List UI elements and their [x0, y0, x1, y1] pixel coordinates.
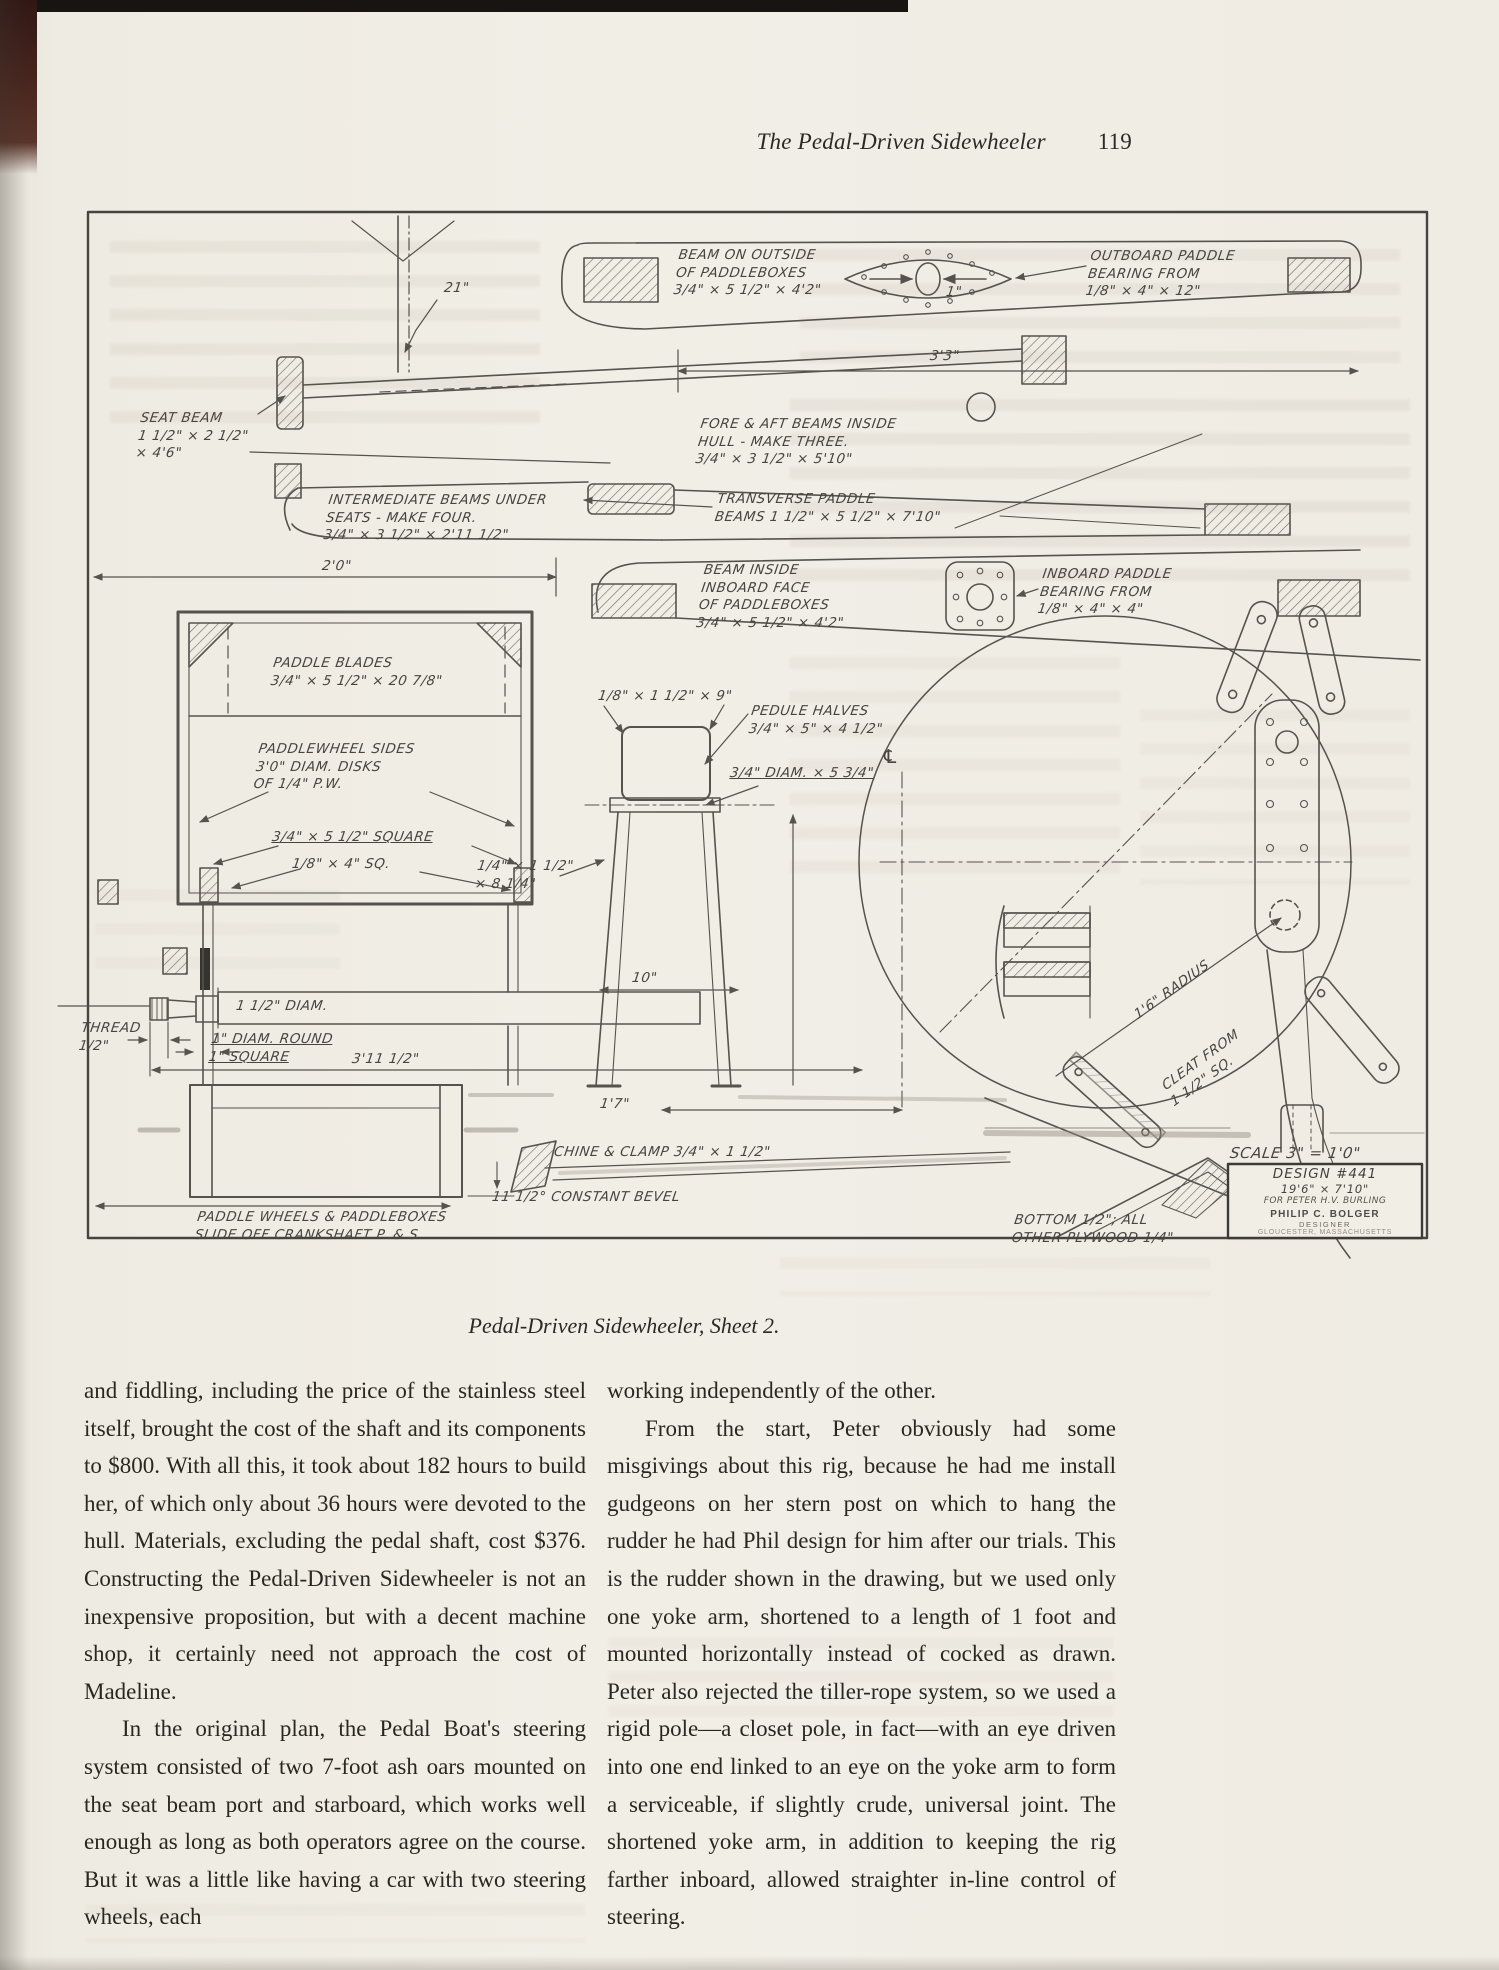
label-constant-bevel: 11 1/2° CONSTANT BEVEL [491, 1189, 682, 1207]
paddlebox-side-view [96, 1085, 516, 1206]
design-block-text: DESIGN #441 19'6" × 7'10" FOR PETER H.V.… [1228, 1164, 1422, 1238]
label-pedal-axle: 3/4" DIAM. × 5 3/4" [729, 765, 875, 783]
scan-edge-left [0, 0, 28, 1970]
label-dim-3ft3: 3'3" [929, 348, 961, 366]
label-fore-aft-beams: FORE & AFT BEAMS INSIDE HULL - MAKE THRE… [694, 416, 897, 469]
label-dim-1ft7: 1'7" [599, 1096, 631, 1114]
running-head: The Pedal-Driven Sidewheeler119 [0, 129, 1132, 155]
label-paddlewheels-slide: PADDLE WHEELS & PADDLEBOXES SLIDE OFF CR… [194, 1209, 448, 1244]
book-page: The Pedal-Driven Sidewheeler119 BEAM ON … [0, 0, 1499, 1970]
label-pedal-halves: PEDULE HALVES 3/4" × 5" × 4 1/2" [748, 703, 887, 738]
centerline-symbol: ℄ [884, 745, 897, 770]
label-beam-inside: BEAM INSIDE INBOARD FACE OF PADDLEBOXES … [695, 562, 853, 632]
crankshaft-view [58, 988, 862, 1076]
label-scale: SCALE 3" = 1'0" [1229, 1144, 1362, 1164]
designer-name: PHILIP C. BOLGER [1228, 1209, 1422, 1220]
label-bottom-plywood: BOTTOM 1/2"; ALL OTHER PLYWOOD 1/4" [1011, 1212, 1178, 1247]
paragraph: From the start, Peter obviously had some… [607, 1410, 1116, 1936]
label-round-square: 1" DIAM. ROUND 1" SQUARE [208, 1031, 335, 1066]
label-dim-3ft11: 3'11 1/2" [351, 1051, 421, 1069]
scan-edge-top [0, 0, 908, 12]
label-beam-outside: BEAM ON OUTSIDE OF PADDLEBOXES 3/4" × 5 … [672, 247, 827, 300]
label-chine-clamp: CHINE & CLAMP 3/4" × 1 1/2" [553, 1144, 772, 1162]
label-pedal-strap: 1/8" × 1 1/2" × 9" [597, 688, 734, 706]
label-paddle-blades: PADDLE BLADES 3/4" × 5 1/2" × 20 7/8" [270, 655, 447, 690]
label-dim-21in: 21" [443, 280, 471, 298]
scan-edge-bottom [0, 1956, 1499, 1970]
page-number: 119 [1098, 129, 1132, 155]
label-transverse-beams: TRANSVERSE PADDLE BEAMS 1 1/2" × 5 1/2" … [714, 491, 945, 526]
label-strap-2: 1/4" × 1 1/2" × 8 1/4" [474, 858, 575, 893]
label-square-34: 3/4" × 5 1/2" SQUARE [271, 829, 435, 847]
paragraph: In the original plan, the Pedal Boat's s… [84, 1710, 586, 1936]
paragraph: working independently of the other. [607, 1372, 1116, 1410]
label-seat-beam: SEAT BEAM 1 1/2" × 2 1/2" × 4'6" [134, 410, 252, 463]
label-paddlewheel-sides: PADDLEWHEEL SIDES 3'0" DIAM. DISKS OF 1/… [252, 741, 416, 794]
label-dim-2ft0: 2'0" [321, 558, 353, 576]
chapter-title: The Pedal-Driven Sidewheeler [757, 129, 1046, 154]
figure-caption: Pedal-Driven Sidewheeler, Sheet 2. [84, 1313, 1164, 1339]
label-diam-112: 1 1/2" DIAM. [235, 998, 329, 1016]
body-column-right: working independently of the other. From… [607, 1372, 1116, 1936]
designer-city: GLOUCESTER, MASSACHUSETTS [1228, 1229, 1422, 1236]
design-client: FOR PETER H.V. BURLING [1228, 1196, 1422, 1206]
label-sq-18: 1/8" × 4" SQ. [291, 856, 392, 874]
paragraph: and fiddling, including the price of the… [84, 1372, 586, 1710]
label-thread: THREAD 1/2" [78, 1020, 142, 1055]
mast-dimension-21in [352, 216, 454, 372]
label-intermediate-beams: INTERMEDIATE BEAMS UNDER SEATS - MAKE FO… [322, 492, 548, 545]
label-dim-1in: 1" [945, 284, 963, 302]
label-inboard-bearing: INBOARD PADDLE BEARING FROM 1/8" × 4" × … [1036, 566, 1173, 619]
design-dimensions: 19'6" × 7'10" [1228, 1182, 1422, 1196]
label-outboard-bearing: OUTBOARD PADDLE BEARING FROM 1/8" × 4" ×… [1084, 248, 1236, 301]
body-column-left: and fiddling, including the price of the… [84, 1372, 586, 1936]
designer-title: DESIGNER [1228, 1220, 1422, 1229]
design-number: DESIGN #441 [1228, 1166, 1422, 1182]
label-dim-10in: 10" [631, 970, 659, 988]
